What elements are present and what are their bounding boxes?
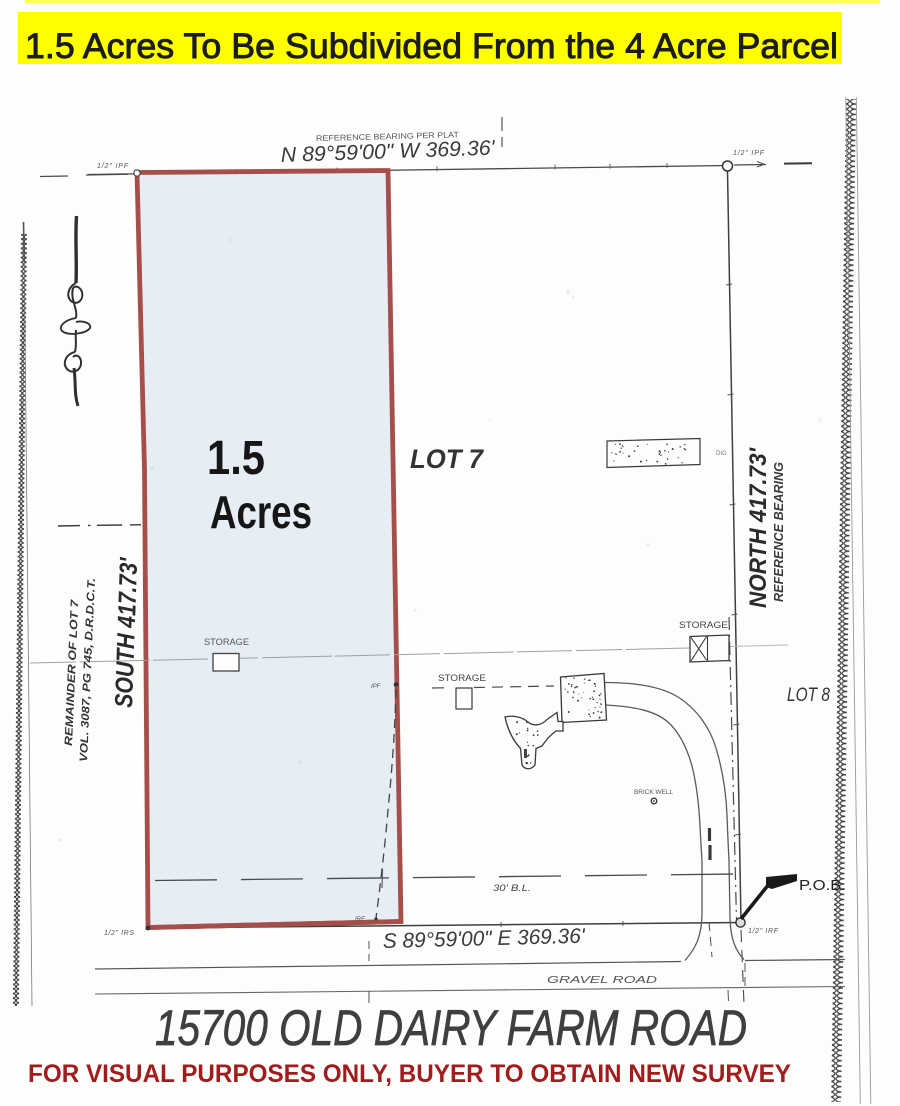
svg-text:STORAGE: STORAGE <box>204 637 249 647</box>
svg-text:FOR VISUAL PURPOSES ONLY, BUYE: FOR VISUAL PURPOSES ONLY, BUYER TO OBTAI… <box>28 1060 791 1088</box>
svg-text:GRAVEL ROAD: GRAVEL ROAD <box>547 974 658 986</box>
svg-text:15700 OLD DAIRY FARM ROAD: 15700 OLD DAIRY FARM ROAD <box>155 1000 747 1056</box>
svg-text:1/2" IPF: 1/2" IPF <box>97 163 129 170</box>
svg-text:BRICK WELL: BRICK WELL <box>634 790 674 796</box>
svg-text:DIG: DIG <box>716 451 727 457</box>
svg-text:1/2" IPF: 1/2" IPF <box>733 150 765 157</box>
svg-text:1.5 Acres To Be Subdivided Fro: 1.5 Acres To Be Subdivided From the 4 Ac… <box>25 27 838 66</box>
svg-text:30' B.L.: 30' B.L. <box>493 883 531 894</box>
svg-text:IPF: IPF <box>371 684 381 690</box>
svg-text:Acres: Acres <box>210 486 312 538</box>
svg-text:NORTH 417.73': NORTH 417.73' <box>745 447 772 608</box>
svg-text:STORAGE: STORAGE <box>679 620 728 630</box>
svg-text:IRF: IRF <box>355 917 365 923</box>
svg-text:1.5: 1.5 <box>207 432 265 485</box>
svg-text:LOT 7: LOT 7 <box>410 444 485 474</box>
svg-text:LOT 8: LOT 8 <box>787 685 830 706</box>
svg-text:REFERENCE BEARING: REFERENCE BEARING <box>772 462 786 602</box>
svg-text:STORAGE: STORAGE <box>438 673 486 683</box>
svg-text:1/2" IRS: 1/2" IRS <box>104 930 134 937</box>
svg-text:1/2" IRF: 1/2" IRF <box>748 928 779 935</box>
svg-text:P.O.B.: P.O.B. <box>799 878 846 894</box>
svg-text:SOUTH 417.73': SOUTH 417.73' <box>110 556 143 708</box>
